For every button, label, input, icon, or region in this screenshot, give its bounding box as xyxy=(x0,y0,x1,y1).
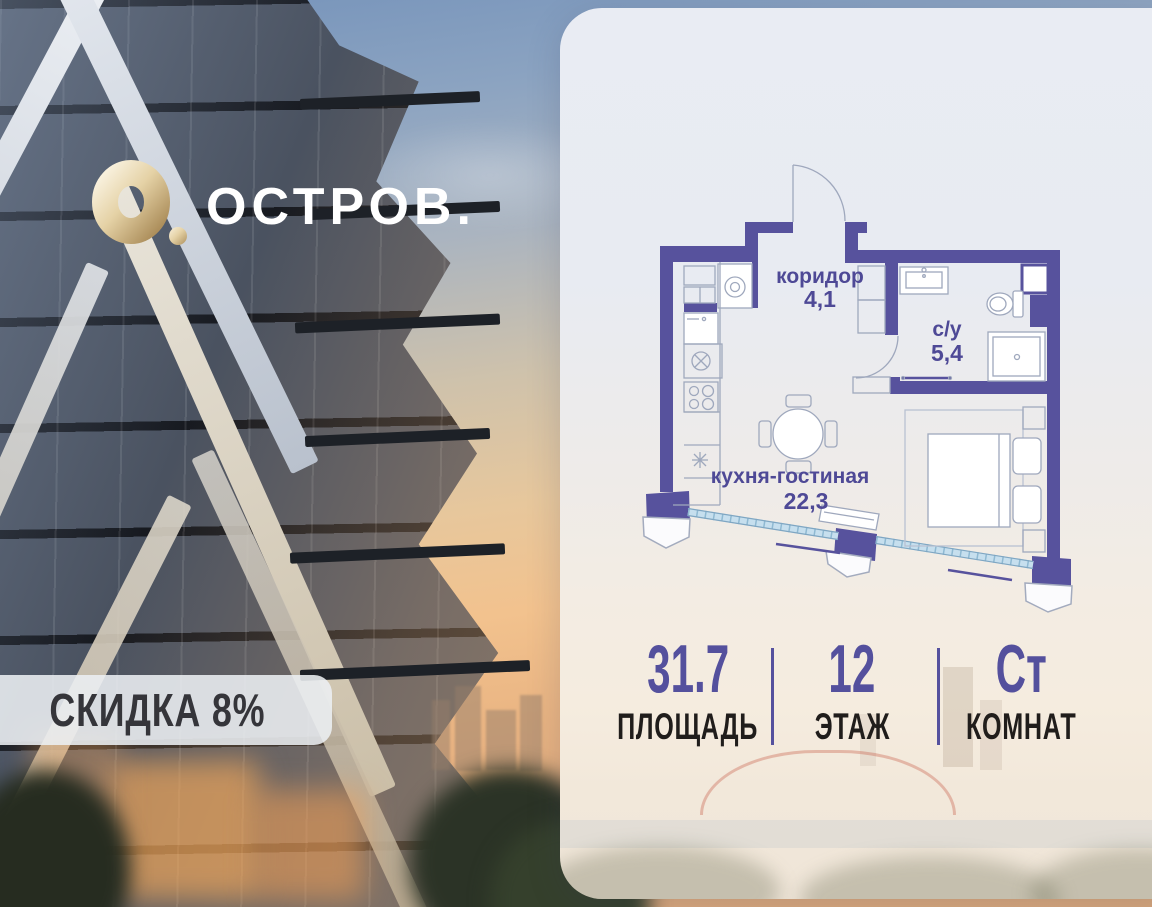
stat-area-label: ПЛОЩАДЬ xyxy=(618,711,759,743)
wardrobe xyxy=(858,300,885,333)
room-name: коридор xyxy=(776,265,864,288)
nightstand xyxy=(1023,530,1045,552)
city-building xyxy=(432,700,450,770)
bridge-arch xyxy=(700,750,956,815)
stat-rooms-label: КОМНАТ xyxy=(966,711,1076,743)
extractor-symbol xyxy=(692,452,708,468)
hall-cabinet xyxy=(853,377,890,393)
kitchen-sink xyxy=(684,344,722,378)
room-name: кухня-гостиная xyxy=(711,465,870,488)
brand-name: ОСТРОВ. xyxy=(206,181,476,233)
window-glow xyxy=(255,790,365,900)
sliding-door xyxy=(902,377,952,380)
room-area: 4,1 xyxy=(804,286,836,312)
brand-ring-icon xyxy=(88,158,190,250)
city-building xyxy=(486,710,516,770)
discount-text: СКИДКА 8% xyxy=(49,683,265,737)
stat-rooms-value: Ст xyxy=(995,642,1046,696)
toilet xyxy=(987,291,1023,317)
treeline xyxy=(560,846,780,899)
window-glow xyxy=(110,760,260,900)
bathroom-sink xyxy=(900,267,948,294)
stat-floor-value: 12 xyxy=(829,642,876,696)
room-name: с/у xyxy=(932,318,962,341)
treeline xyxy=(800,856,1060,899)
promo-banner[interactable]: ОСТРОВ. СКИДКА 8% xyxy=(0,0,1152,907)
washing-machine xyxy=(718,264,752,308)
floor-plan: коридор 4,1 с/у 5,4 кухня-гостиная 22,3 xyxy=(636,152,1080,622)
bed xyxy=(928,434,1041,527)
room-area: 5,4 xyxy=(931,340,963,366)
shower xyxy=(988,332,1045,381)
stat-floor-label: ЭТАЖ xyxy=(814,711,889,743)
treeline xyxy=(1030,848,1152,899)
shelf xyxy=(684,266,715,285)
city-building xyxy=(455,686,481,771)
stove xyxy=(684,382,718,412)
dining-table xyxy=(759,395,837,473)
discount-badge: СКИДКА 8% xyxy=(0,675,332,745)
fridge xyxy=(684,313,718,344)
vent-shaft xyxy=(1022,265,1048,293)
room-area: 22,3 xyxy=(784,488,829,514)
river xyxy=(560,820,1152,848)
stat-rooms: Ст КОМНАТ xyxy=(911,642,1131,744)
stat-area-value: 31.7 xyxy=(647,642,729,696)
entry-door xyxy=(793,165,845,222)
bathroom-door xyxy=(856,336,898,378)
city-building xyxy=(520,695,542,771)
nightstand xyxy=(1023,407,1045,429)
